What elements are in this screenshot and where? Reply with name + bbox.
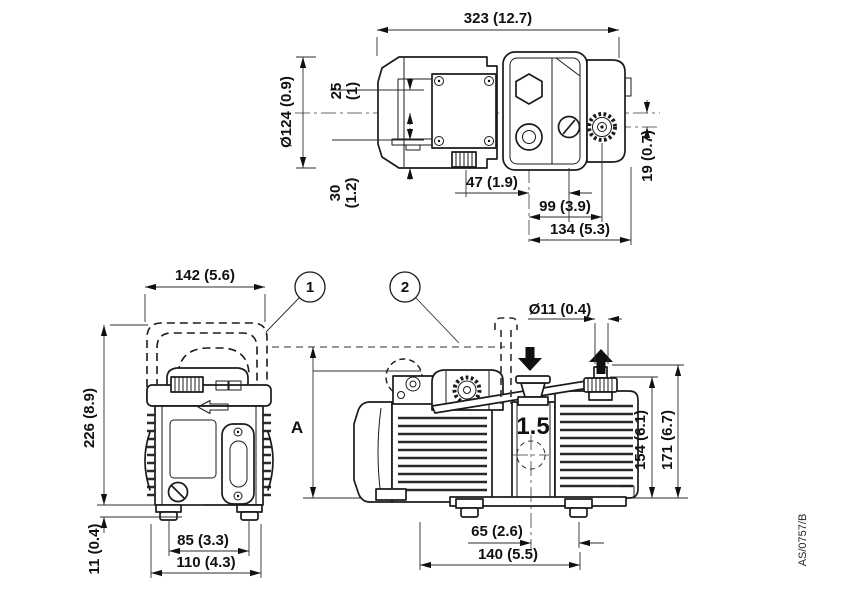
flange-front xyxy=(147,385,271,406)
model-label: 1.5 xyxy=(516,413,549,440)
oil-sight-glass xyxy=(222,424,254,504)
foot-side-right xyxy=(565,499,592,517)
dim-foot-span-side: 140 (5.5) xyxy=(478,546,538,563)
dim-foot-span-front: 85 (3.3) xyxy=(177,532,229,549)
dim-offset-lower-mm: 30 xyxy=(327,185,344,202)
outlet-flow-arrow-icon xyxy=(589,349,613,374)
front-view: 142 (5.6) 226 (8.9) 11 (0.4) 85 (3.3) 11… xyxy=(81,267,273,578)
dim-overall-length: 323 (12.7) xyxy=(464,10,532,27)
dim-body-height: 154 (6.1) xyxy=(632,410,649,470)
dim-handle-height: A xyxy=(291,418,303,437)
drawing-reference: AS/0757/B xyxy=(797,514,809,567)
dim-offset-lower-in: (1.2) xyxy=(343,178,360,209)
dim-gas-ballast-offset: 19 (0.7) xyxy=(639,130,656,182)
dim-inlet-offset: 47 (1.9) xyxy=(466,174,518,191)
side-view: 1.5 A Ø11 (0.4) 154 (6.1) 171 (6.7) 65 (… xyxy=(272,301,688,570)
terminal-box-side xyxy=(393,376,435,404)
dim-base-width: 110 (4.3) xyxy=(176,554,235,571)
callout-2-number: 2 xyxy=(401,279,409,296)
pump-module-top xyxy=(503,52,587,170)
top-view: 323 (12.7) Ø124 (0.9) 25 (1) 30 (1.2) 47… xyxy=(278,10,660,246)
dim-port-span: 99 (3.9) xyxy=(539,198,591,215)
inlet-flow-arrow-icon xyxy=(518,347,542,371)
dim-overall-height-side: 171 (6.7) xyxy=(659,410,676,470)
side-bulge-right xyxy=(268,432,273,490)
dim-foot-height: 11 (0.4) xyxy=(86,524,103,575)
dim-handle-width: 142 (5.6) xyxy=(175,267,235,284)
dim-inlet-offset-side: 65 (2.6) xyxy=(471,523,523,540)
motor-foot xyxy=(376,489,406,500)
oil-drain-plug xyxy=(169,483,188,502)
dim-motor-diameter: Ø124 (0.9) xyxy=(278,76,295,148)
dim-overall-height: 226 (8.9) xyxy=(81,388,98,448)
dim-offset-upper-in: (1) xyxy=(344,82,361,100)
foot-front-left xyxy=(156,505,181,520)
foot-side-left xyxy=(456,499,483,517)
end-cap-top xyxy=(587,60,625,162)
pump-dimension-drawing: 323 (12.7) Ø124 (0.9) 25 (1) 30 (1.2) 47… xyxy=(0,0,867,614)
callout-1-number: 1 xyxy=(306,279,314,296)
dim-module-length: 134 (5.3) xyxy=(550,221,610,238)
foot-front-right xyxy=(237,505,262,520)
motor-end-bell xyxy=(354,402,392,502)
dim-port-diameter: Ø11 (0.4) xyxy=(529,301,592,318)
dim-offset-upper-mm: 25 xyxy=(328,83,345,100)
side-bulge-left xyxy=(145,432,150,490)
callouts: 1 2 xyxy=(266,272,459,343)
